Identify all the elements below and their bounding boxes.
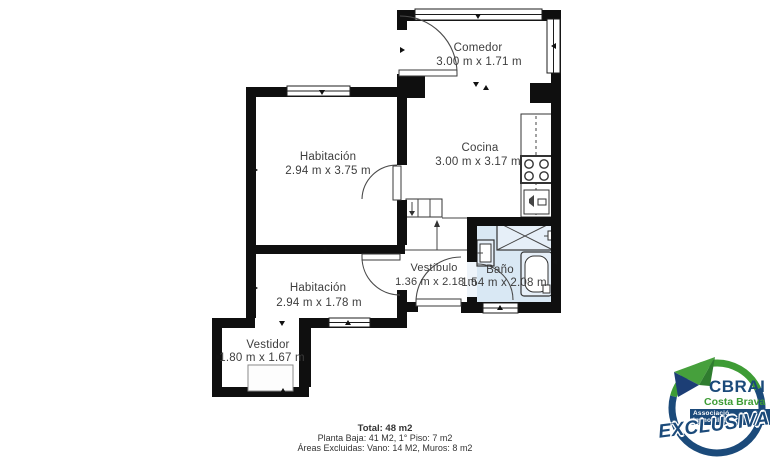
room-dims-bano: 1.54 m x 2.08 m (461, 277, 546, 289)
room-label-comedor: Comedor (454, 42, 503, 54)
floorplan-drawing (0, 0, 770, 460)
room-label-vestibulo: Vestíbulo (410, 262, 457, 274)
room-dims-cocina: 3.00 m x 3.17 m (435, 156, 520, 168)
room-dims-vestidor: 1.80 m x 1.67 m (219, 352, 304, 364)
wardrobe-icon (248, 365, 293, 391)
dimension-ticks (216, 14, 557, 393)
area-summary: Total: 48 m2 Planta Baja: 41 M2, 1° Piso… (0, 424, 770, 453)
room-dims-bedroom2: 2.94 m x 1.78 m (276, 297, 361, 309)
excluded-areas: Áreas Excluidas: Vano: 14 M2, Muros: 8 m… (0, 444, 770, 454)
floorplan-page: Comedor 3.00 m x 1.71 m Cocina 3.00 m x … (0, 0, 770, 460)
logo-brand-text: CBRAI (709, 378, 765, 395)
room-dims-bedroom1: 2.94 m x 3.75 m (285, 165, 370, 177)
room-label-cocina: Cocina (462, 142, 499, 154)
room-label-vestidor: Vestidor (246, 339, 289, 351)
room-label-bano: Baño (486, 264, 514, 276)
door-bedroom2 (362, 254, 400, 295)
room-label-bedroom2: Habitación (290, 282, 346, 294)
stove-icon (521, 156, 552, 183)
bathtub-icon (521, 252, 552, 296)
stairs (405, 199, 467, 250)
agency-logo: CBRAI Costa Brava Associació Immobiliàri… (658, 352, 770, 460)
room-label-bedroom1: Habitación (300, 151, 356, 163)
room-dims-comedor: 3.00 m x 1.71 m (436, 56, 521, 68)
logo-region-text: Costa Brava (704, 397, 765, 408)
kitchen-sink-icon (524, 190, 549, 214)
shower-icon (497, 222, 555, 250)
